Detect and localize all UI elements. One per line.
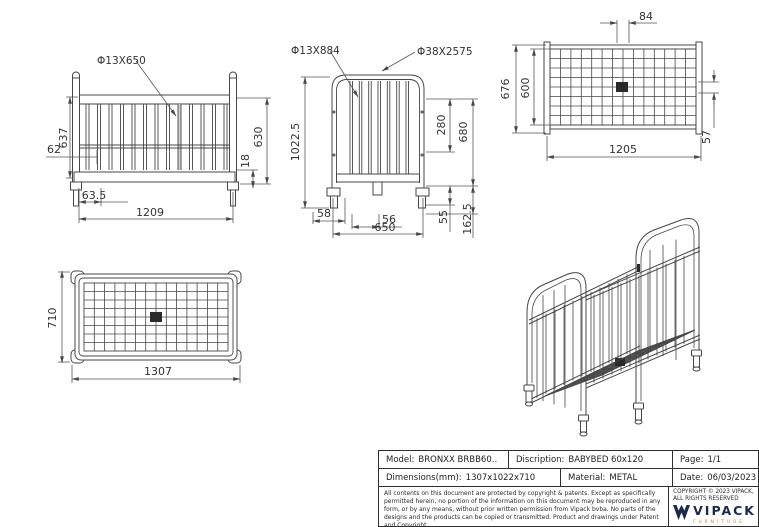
description-value: BABYBED 60x120 [568,455,643,465]
front-view: 637 62 63.5 1209 630 18 Φ13X650 [46,55,271,223]
callout-side-frame: Φ38X2575 [417,46,473,58]
dim-side-upper: 280 [435,115,448,136]
legal-text: All contents on this document are protec… [379,487,669,526]
iso-dropside-latch [637,264,640,272]
technical-drawing: 637 62 63.5 1209 630 18 Φ13X650 [0,0,759,527]
copyright-line-1: COPYRIGHT © 2023 VIPACK, [673,489,756,496]
vipack-logo-texts: VIPACK FURNITURE [693,505,756,524]
iso-left-end-frame [527,273,586,415]
material-cell: Material: METAL [561,469,673,486]
page-label: Page: [680,455,703,465]
center-latch-mark [150,312,162,322]
date-value: 06/03/2023 [707,473,756,483]
dimensions-label: Dimensions(mm): [386,473,462,483]
iso-foot [692,350,702,371]
bottom-rail [74,172,235,182]
dimensions-cell: Dimensions(mm): 1307x1022x710 [379,469,561,486]
dim-side-width: 650 [375,221,396,234]
date-label: Date: [680,473,703,483]
callout-front-bar: Φ13X650 [97,55,146,67]
model-label: Model: [386,455,414,465]
dim-base-slat-gap: 84 [639,10,653,23]
title-block-row-2: Dimensions(mm): 1307x1022x710 Material: … [379,469,758,487]
dim-base-side-gap: 57 [700,130,713,144]
iso-back-slats [594,256,684,383]
dim-front-inner-height: 630 [252,127,265,148]
iso-right-end-frame [636,219,699,403]
top-rail [80,95,230,104]
slat-bars [86,104,227,170]
iso-foot [634,403,644,424]
isometric-view [524,219,702,436]
left-post [73,78,80,182]
side-right-collar [416,188,429,196]
crib-top-view: 710 1307 [46,271,241,383]
dim-base-width: 1205 [609,143,637,156]
dim-side-foot-height: 162.5 [461,203,474,235]
title-block-row-1: Model: BRONXX BRBB60.. Discription: BABY… [379,451,758,469]
mid-rail [80,145,230,148]
left-foot-leg [74,190,79,206]
side-right-leg [419,196,426,208]
material-label: Material: [568,473,605,483]
iso-foot [524,385,534,406]
title-block-row-3: All contents on this document are protec… [379,487,758,526]
side-left-collar [327,188,340,196]
dim-side-foot-offset: 58 [317,207,331,220]
model-value: BRONXX BRBB60.. [418,455,497,465]
vipack-logo: VIPACK FURNITURE [673,505,756,524]
right-post [230,78,237,182]
left-foot-collar [71,182,82,190]
copyright-cell: COPYRIGHT © 2023 VIPACK, ALL RIGHTS RESE… [669,487,758,526]
dimensions-value: 1307x1022x710 [466,473,536,483]
callout-side-bar: Φ13X884 [291,45,340,57]
material-value: METAL [609,473,637,483]
copyright-line-2: ALL RIGHTS RESERVED [673,496,756,503]
dim-side-base-band: 55 [437,210,450,224]
right-foot-collar [228,182,239,190]
center-support [373,182,382,195]
dim-crib-depth: 710 [46,308,59,329]
iso-foot [579,415,589,436]
side-left-leg [331,196,338,208]
date-cell: Date: 06/03/2023 [673,469,758,486]
page-cell: Page: 1/1 [673,451,758,468]
dim-side-total-height: 1022.5 [289,123,302,162]
base-top-view: 84 676 600 1205 57 [499,10,719,161]
dim-base-inner-depth: 600 [519,78,532,99]
title-block: Model: BRONXX BRBB60.. Discription: BABY… [378,450,759,527]
dim-front-base-gap: 18 [239,154,252,168]
dim-side-inner-height: 680 [457,122,470,143]
dim-front-rail-offset: 62 [47,143,61,156]
side-bottom-rail [337,174,420,182]
drawing-sheet: 637 62 63.5 1209 630 18 Φ13X650 [0,0,759,527]
description-cell: Discription: BABYBED 60x120 [509,451,673,468]
side-view: 1022.5 280 680 55 162.5 58 56 650 Φ13X88… [289,45,478,238]
page-value: 1/1 [707,455,721,465]
vipack-logo-text: VIPACK [693,505,756,518]
dim-base-outer-depth: 676 [499,79,512,100]
left-end-cap [544,42,550,134]
dim-front-width: 1209 [136,206,164,219]
dim-crib-width: 1307 [144,365,172,378]
vipack-logo-subtext: FURNITURE [693,519,756,524]
vipack-logo-mark [673,505,690,520]
model-cell: Model: BRONXX BRBB60.. [379,451,509,468]
center-latch-mark [616,82,628,92]
iso-right-end-frame-inner [641,225,694,401]
iso-right-end-bars [650,240,676,360]
dim-front-foot-offset: 63.5 [82,189,107,202]
description-label: Discription: [516,455,564,465]
right-end-cap [696,42,702,134]
